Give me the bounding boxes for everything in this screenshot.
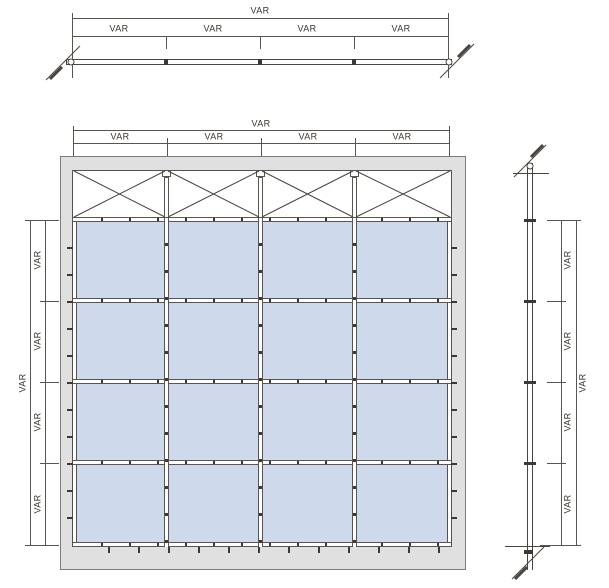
dim-label: VAR [203,25,222,34]
dim-label: VAR [250,7,269,16]
dim-label: VAR [391,25,410,34]
dim-tick [40,463,59,464]
dim-tick [167,138,168,156]
dim-label: VAR [109,25,128,34]
dim-tick [261,138,262,156]
dim-tick [354,36,355,49]
splice-tick [524,219,536,222]
top-section-linework [0,0,609,100]
extension-line [547,220,581,221]
dim-label: VAR [34,494,43,513]
splice-tick [524,462,536,465]
extension-line [540,545,581,546]
head-plate [513,173,549,174]
post-cap [162,170,171,177]
mullion [164,217,169,547]
splice-tick [524,381,536,384]
dim-label: VAR [392,133,411,142]
extension-line [448,13,449,78]
connector-block [258,59,262,65]
mullion-section-member [527,163,533,570]
dim-label: VAR [251,120,270,129]
dim-line-segments [45,220,46,546]
dim-label: VAR [564,412,573,431]
dim-label: VAR [564,250,573,269]
dim-label: VAR [34,250,43,269]
post-cap [350,170,359,177]
drawing-canvas: VAR VAR VAR VAR VAR [0,0,609,588]
connector-block [164,59,168,65]
dim-tick [547,301,566,302]
dim-label: VAR [579,373,588,392]
connector-block [352,59,356,65]
brace-post [258,177,263,218]
dim-tick [547,382,566,383]
mullion [352,217,357,547]
dim-label: VAR [34,331,43,350]
dim-label: VAR [110,133,129,142]
post-cap [256,170,265,177]
sill-plate [505,546,550,547]
brace-post [352,177,357,218]
dim-label: VAR [297,25,316,34]
dim-line-overall [30,220,31,546]
dim-tick [547,463,566,464]
dim-tick [40,382,59,383]
dim-tick [260,36,261,49]
jamb-fastener-ticks [451,222,457,544]
dim-label: VAR [19,373,28,392]
dim-line-overall [72,18,449,19]
sill-anchor-ticks [80,547,446,553]
dim-label: VAR [564,331,573,350]
dim-tick [166,36,167,49]
extension-line [72,13,73,78]
dim-tick [40,301,59,302]
splice-tick [524,300,536,303]
mullion [258,217,263,547]
brace-post [164,177,169,218]
dim-label: VAR [34,412,43,431]
dim-label: VAR [564,494,573,513]
dim-label: VAR [204,133,223,142]
dim-tick [355,138,356,156]
extension-line [25,545,59,546]
dim-label: VAR [298,133,317,142]
extension-line [25,220,59,221]
